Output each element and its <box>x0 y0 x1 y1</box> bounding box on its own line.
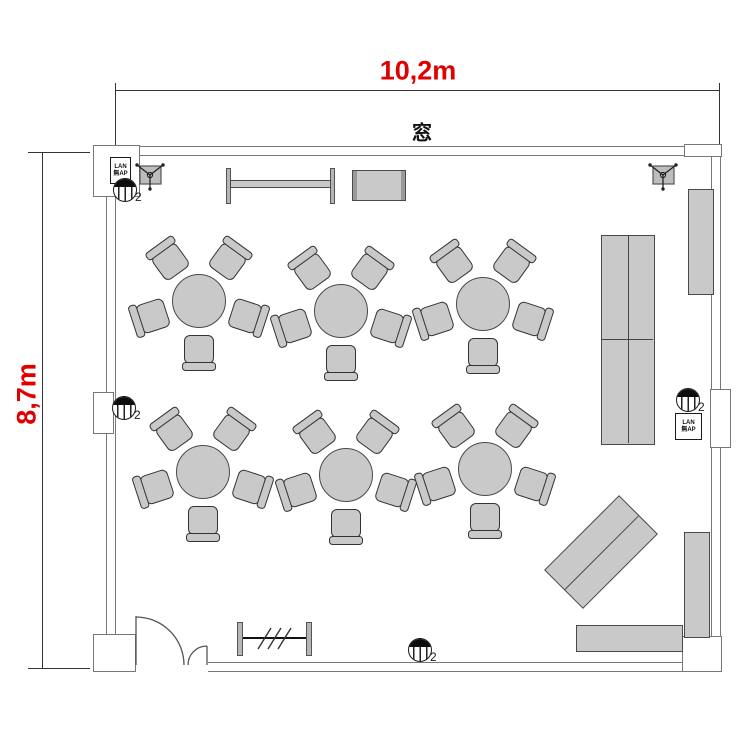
door-swing-right <box>188 646 207 665</box>
door-swing-left <box>136 617 184 665</box>
ceiling-speaker-icon <box>648 163 677 190</box>
ceiling-speaker-icon <box>135 163 164 190</box>
double-door <box>136 616 207 665</box>
floor-plan: 10,2m 8,7m 窓 LAN 無AP <box>0 0 750 750</box>
rack-hatch-marks <box>258 628 291 649</box>
speaker-layer <box>135 163 677 190</box>
symbol-overlay <box>0 0 750 750</box>
